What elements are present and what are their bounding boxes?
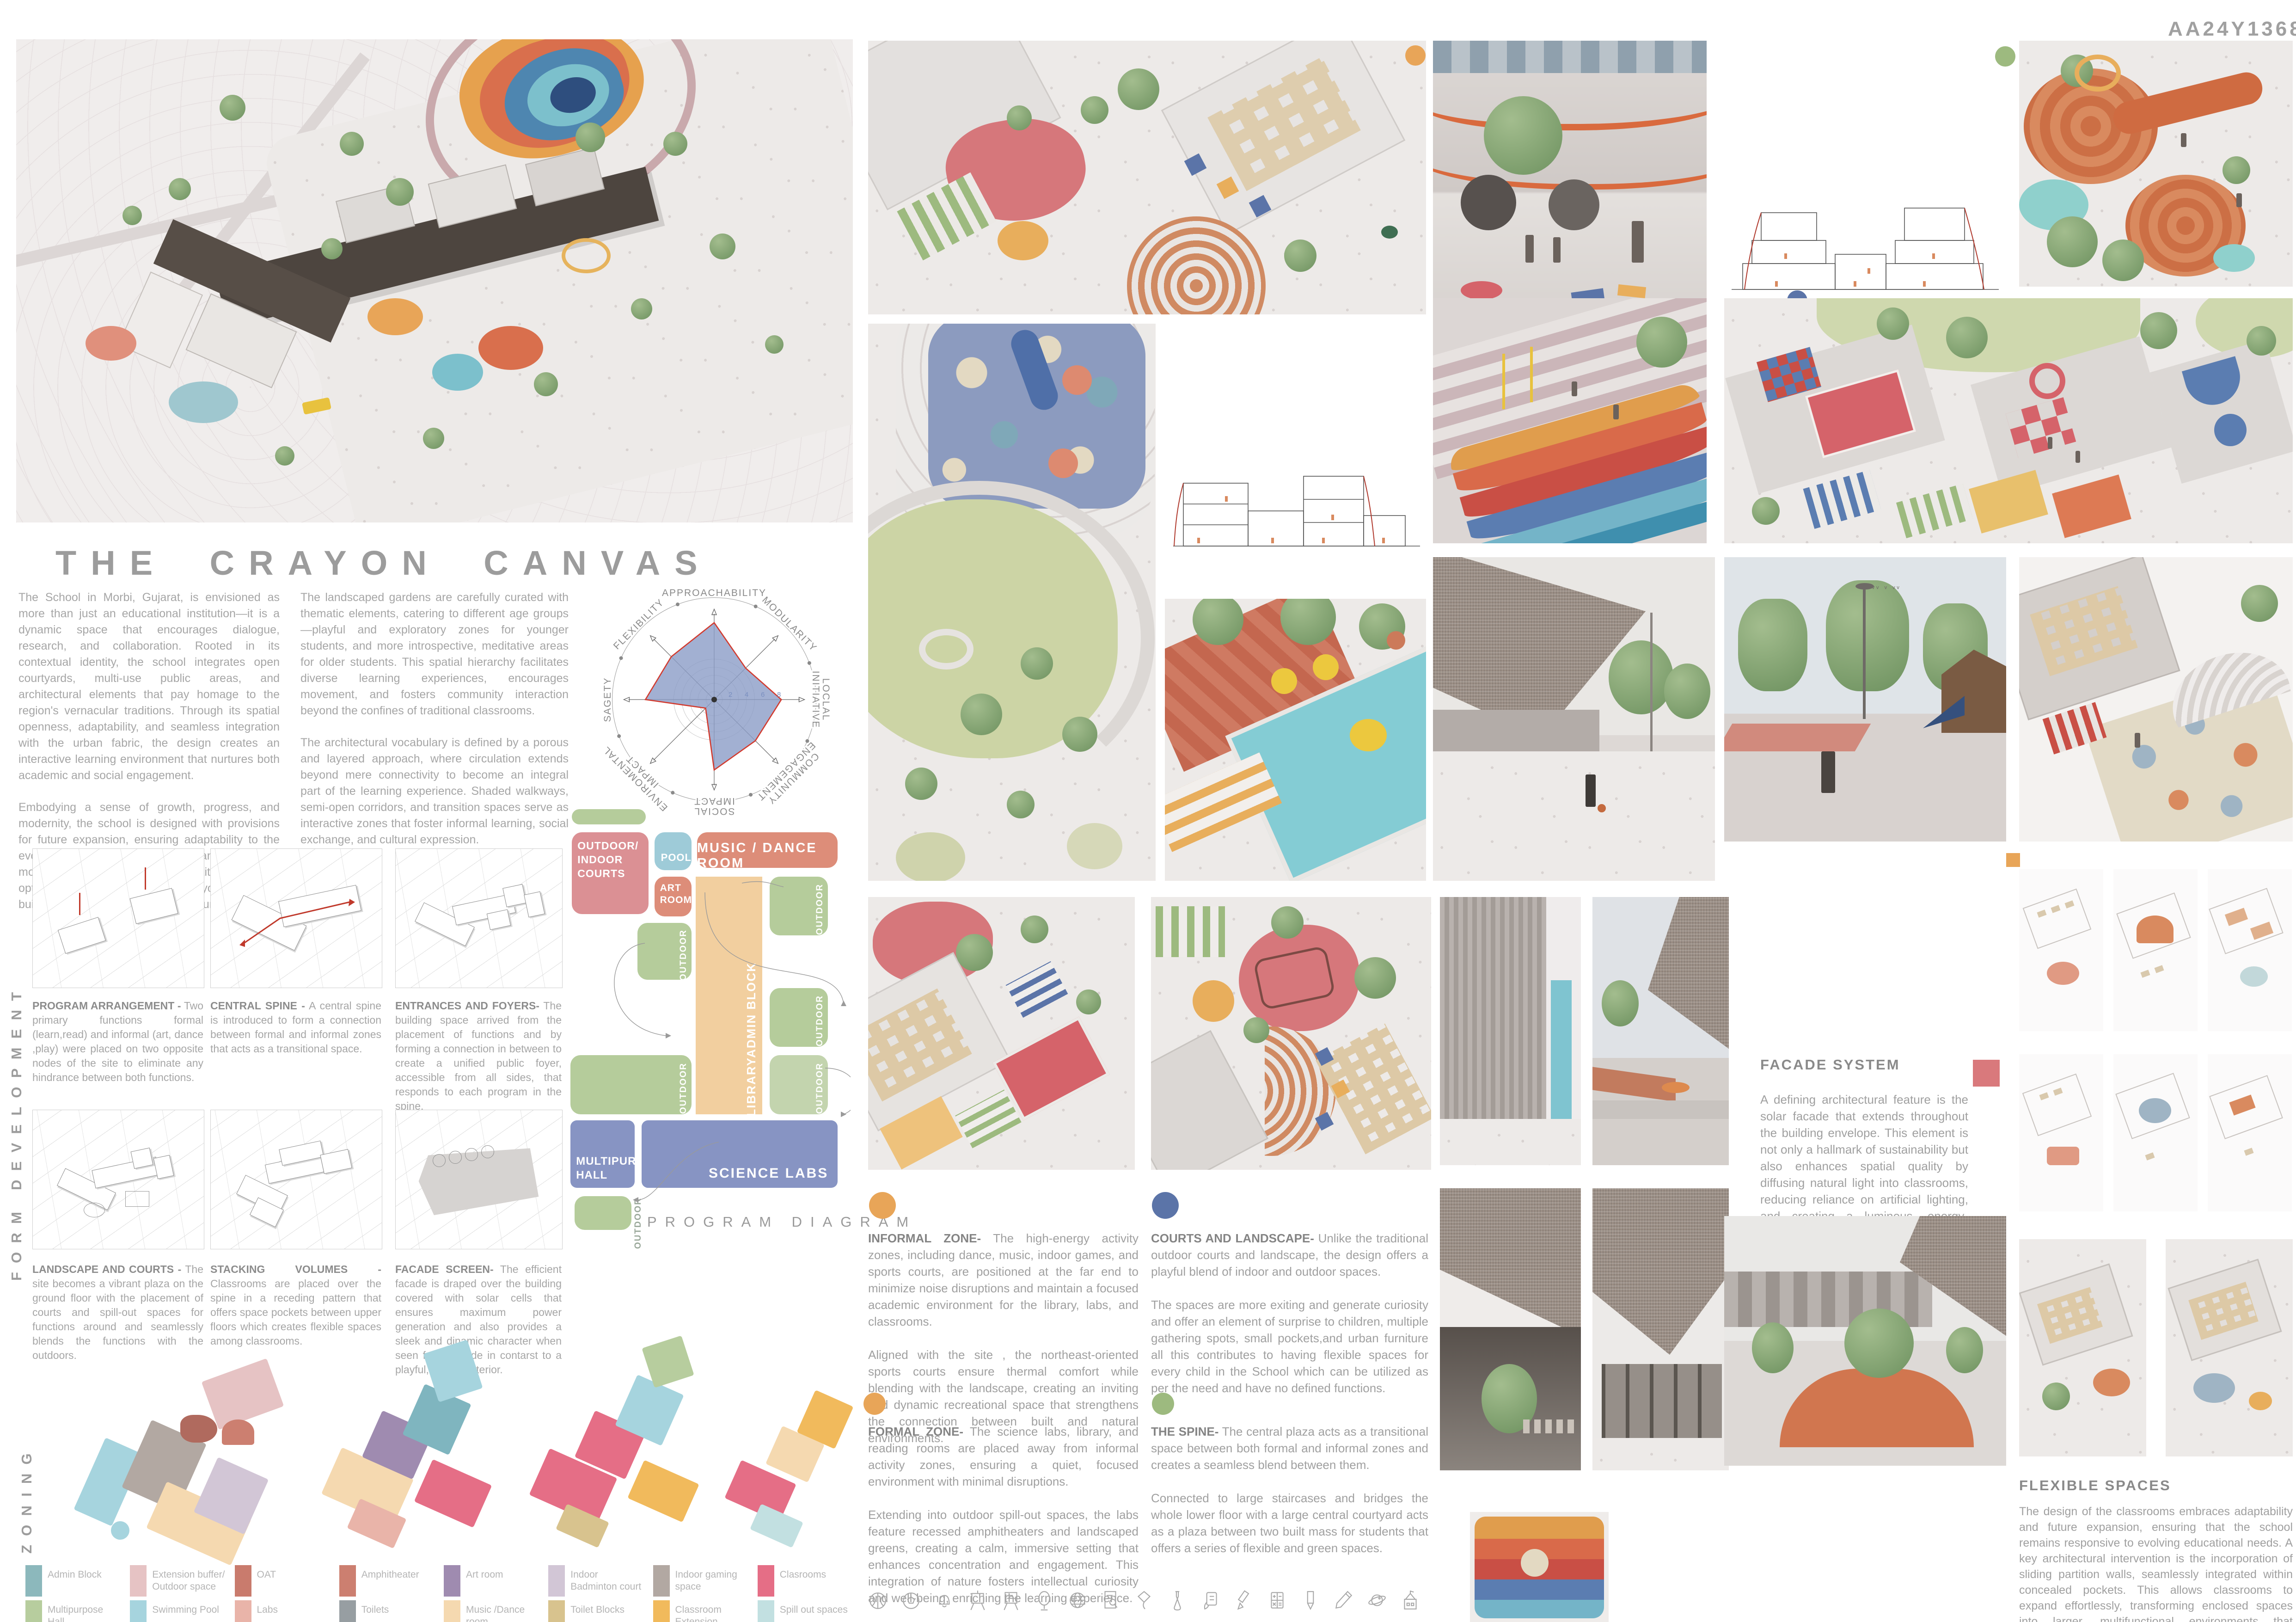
photo-brown-roof-building: [1433, 557, 1715, 881]
form-sketch-entrances-foyers: [395, 848, 563, 988]
court-rect-shape: [125, 1191, 149, 1207]
plaza-ground-shape: [1433, 751, 1715, 881]
person-figure: [2076, 451, 2080, 463]
tree-icon: [423, 428, 444, 449]
legend-swatch: [548, 1565, 565, 1597]
legend-item: Labs: [235, 1600, 335, 1622]
ring-mark-shape: [2029, 363, 2065, 399]
photo-playground-street: ᵛᵛ ᵛ ᵛᵛ: [1724, 557, 2006, 842]
solar-cell-shape: [481, 1145, 494, 1158]
tree-icon: [961, 694, 1002, 735]
play-spot-shape: [478, 326, 543, 370]
tree-icon: [1752, 497, 1780, 525]
competition-board: AA24Y1368: [0, 0, 2296, 1622]
legend-label: Extension buffer/ Outdoor space: [152, 1565, 226, 1593]
render-rainbow-flower-strip: [1470, 1512, 1609, 1622]
mass-box-shape: [58, 917, 106, 954]
zone-block-shape: [414, 1459, 492, 1528]
page-title: THE CRAYON CANVAS: [55, 543, 545, 583]
zone-text-spine: THE SPINE- The central plaza acts as a t…: [1151, 1423, 1428, 1573]
mass-box-shape: [153, 1155, 174, 1179]
legend-item: Toilets: [339, 1600, 439, 1622]
tree-icon: [2140, 312, 2177, 349]
floor-mark-shape: [1461, 281, 1502, 300]
tree-icon: [710, 233, 735, 259]
flow-arrows: [566, 809, 851, 1230]
zone-heading: FORMAL ZONE-: [868, 1425, 963, 1438]
person-figure: [2048, 437, 2052, 449]
flexible-spaces-paragraph: The design of the classrooms embraces ad…: [2019, 1504, 2293, 1622]
school-building-icon: [1401, 1590, 1420, 1611]
play-spot-shape: [367, 298, 423, 335]
desk-shape: [2145, 1152, 2155, 1160]
svg-text:APPROACHABILITY: APPROACHABILITY: [662, 588, 766, 598]
court-ellipse-shape: [84, 1203, 105, 1217]
tree-icon: [576, 123, 605, 152]
legend-item: Indoor Badminton court: [548, 1565, 648, 1597]
form-caption-title: PROGRAM ARRANGEMENT -: [32, 1000, 181, 1012]
intro-column-2: The landscaped gardens are carefully cur…: [300, 590, 569, 864]
form-sketch-central-spine: [210, 848, 382, 988]
tree-icon: [1738, 599, 1807, 691]
form-caption-text: The building space arrived from the plac…: [395, 1000, 562, 1112]
svg-text:LOCLALINITIATIVE: LOCLALINITIATIVE: [810, 671, 831, 729]
render-courtyard-ribbons: [1433, 41, 1707, 314]
blue-dot-mark-shape: [2214, 414, 2247, 446]
tree-icon: [220, 95, 245, 121]
salmon-circle-shape: [1062, 365, 1092, 395]
legend-label: Music /Dance room: [466, 1600, 540, 1622]
mass-box-shape: [130, 888, 178, 924]
legend-item: Extension buffer/ Outdoor space: [130, 1565, 230, 1597]
diagram-classroom-layout-5: [2113, 1054, 2198, 1211]
tree-icon: [1081, 96, 1108, 124]
orange-marker-square: [2006, 853, 2020, 867]
render-sports-courts-aerial: [1724, 298, 2293, 543]
legend-item: Music /Dance room: [444, 1600, 544, 1622]
tree-icon: [1484, 96, 1562, 175]
orange-ring-shape: [2075, 55, 2121, 92]
noticeboard-icon: [1001, 1590, 1021, 1611]
zone-dot-informal: [869, 1192, 896, 1219]
building-band-shape: [1433, 710, 1599, 751]
calculator-icon: [1267, 1590, 1287, 1611]
diagram-classroom-layout-6: [2208, 1054, 2292, 1211]
tree-icon: [534, 372, 558, 396]
tree-icon: [2223, 156, 2250, 184]
green-stripe-steps-shape: [1156, 906, 1225, 957]
legend-item: OAT: [235, 1565, 335, 1597]
tree-icon: [956, 934, 993, 971]
rubber-duck-shape: [1350, 719, 1387, 751]
diagram-classroom-layout-2: [2113, 869, 2198, 1031]
tree-icon: [765, 335, 784, 354]
orange-marker-dot: [1405, 45, 1426, 66]
svg-text:2: 2: [729, 691, 732, 699]
zoning-plan-2: [314, 1341, 513, 1554]
render-rainbow-court: [1433, 298, 1707, 543]
zone-dot-formal: [863, 1393, 886, 1415]
form-caption-title: LANDSCAPE AND COURTS -: [32, 1263, 181, 1275]
glazing-band-shape: [1433, 41, 1707, 73]
desk-shape: [2244, 1148, 2253, 1155]
photo-street-canopy: [1592, 897, 1729, 1165]
legend-label: Toilet Blocks: [570, 1600, 625, 1616]
tree-icon: [1946, 1327, 1983, 1373]
tree-icon: [1609, 640, 1673, 714]
tree-icon: [1007, 105, 1032, 130]
mass-box-shape: [502, 884, 527, 907]
svg-text:6: 6: [761, 691, 765, 699]
zoning-plan-1: [69, 1359, 300, 1554]
lamp-post-shape: [1650, 613, 1653, 751]
tree-icon: [169, 178, 191, 200]
flexible-spaces-text: The design of the classrooms embraces ad…: [2019, 1504, 2293, 1622]
facade-system-heading: FACADE SYSTEM: [1760, 1057, 1900, 1073]
tree-icon: [340, 132, 364, 156]
legend-swatch: [339, 1565, 356, 1597]
red-marker-square: [1973, 1060, 2000, 1087]
canopy-roof-shape: [1648, 897, 1729, 1077]
intro-paragraph: The landscaped gardens are carefully cur…: [300, 590, 569, 719]
subject-icon-row: [868, 1590, 1432, 1611]
form-caption: ENTRANCES AND FOYERS- The building space…: [395, 999, 562, 1113]
diagram-classroom-layout-1: [2019, 869, 2103, 1031]
legend-swatch: [653, 1600, 670, 1622]
tree-icon: [2042, 1382, 2070, 1410]
legend-swatch: [444, 1565, 460, 1597]
program-diagram: OUTDOOR/ INDOOR COURTS POOL MUSIC / DANC…: [566, 809, 851, 1230]
red-arrow-shape: [211, 849, 382, 988]
play-spot-shape: [432, 354, 483, 391]
render-playground-court-2: [1151, 897, 1431, 1170]
legend-swatch: [758, 1600, 774, 1622]
rug-shape: [2139, 1098, 2171, 1123]
stripe-mat-shape: [1006, 961, 1068, 1018]
mass-box-shape: [524, 891, 545, 917]
mass-box-shape: [487, 909, 511, 930]
tree-icon: [1877, 307, 1909, 340]
zone-block-shape: [202, 1358, 284, 1430]
legend-label: Spill out spaces: [780, 1600, 848, 1616]
tree-icon: [1021, 915, 1048, 943]
form-caption-text: The site becomes a vibrant plaza on the …: [32, 1263, 203, 1361]
solar-cell-shape: [465, 1148, 478, 1161]
mirror-icon: [1035, 1590, 1054, 1611]
flask-icon: [1168, 1590, 1187, 1611]
pool-strip-shape: [1551, 980, 1572, 1137]
red-ground-patch-shape: [1724, 724, 1871, 751]
tree-icon: [631, 298, 652, 319]
pencil-tilt-icon: [1334, 1590, 1353, 1611]
criteria-radar-chart: 2468APPROACHABILITYMODULARITYLOCLALINITI…: [585, 566, 844, 830]
report-search-icon: [1101, 1590, 1120, 1611]
tree-icon: [2047, 216, 2098, 267]
lawn-circle-shape: [1067, 823, 1122, 869]
legend-swatch: [653, 1565, 670, 1597]
legend-label: Indoor gaming space: [675, 1565, 749, 1593]
tree-icon: [1021, 647, 1053, 680]
tree-icon: [2102, 240, 2144, 281]
yellow-court-shape: [1969, 470, 2048, 533]
legend-item: Admin Block: [25, 1565, 125, 1597]
roof-corner-shape: [1592, 1188, 1729, 1355]
glazing-band-shape: [1602, 1364, 1722, 1438]
legend-label: Admin Block: [48, 1565, 102, 1581]
play-spot-shape: [86, 326, 136, 361]
diagram-classroom-iso-2: [2166, 1239, 2293, 1456]
legend-label: Toilets: [361, 1600, 389, 1616]
form-caption-title: CENTRAL SPINE -: [210, 1000, 305, 1012]
rug-shape: [2240, 966, 2268, 987]
legend-label: OAT: [257, 1565, 276, 1581]
render-courtyards-aerial: [868, 41, 1426, 314]
legend-label: Indoor Badminton court: [570, 1565, 644, 1593]
form-sketch-stacking-volumes: [210, 1110, 382, 1249]
tree-icon: [1243, 1017, 1269, 1043]
room-outline-shape: [2023, 889, 2092, 949]
deck-shape: [1440, 1119, 1581, 1165]
orange-court-shape: [2052, 474, 2131, 538]
render-swimming-pool: [1165, 599, 1426, 881]
zone-paragraph: Connected to large staircases and bridge…: [1151, 1491, 1428, 1555]
person-figure: [1613, 405, 1619, 419]
tree-icon: [1844, 1309, 1914, 1378]
legend-swatch: [444, 1600, 460, 1622]
round-opening-shape: [1549, 179, 1599, 230]
render-playground-court-1: [868, 897, 1135, 1170]
tree-icon: [1602, 980, 1639, 1026]
person-figure: [2135, 733, 2140, 748]
easel-icon: [968, 1590, 987, 1611]
legend-label: Amphitheater: [361, 1565, 419, 1581]
form-caption-title: STACKING VOLUMES -: [210, 1263, 381, 1275]
form-development-label: FORM DEVELOPMENT: [8, 837, 25, 1281]
tree-icon: [1076, 989, 1101, 1014]
zone-paragraph: The high-energy activity zones, includin…: [868, 1231, 1139, 1328]
plaza-ground-shape: [1592, 1438, 1729, 1470]
zone-dot-spine: [1152, 1393, 1174, 1415]
slat-facade-shape: [1440, 897, 1546, 1119]
intro-paragraph: The School in Morbi, Gujarat, is envisio…: [18, 590, 280, 784]
spill-out-shape: [2249, 1392, 2272, 1410]
road-shape: [1592, 1100, 1729, 1119]
building-shape: [1151, 1030, 1268, 1170]
svg-text:SAGETY: SAGETY: [602, 677, 613, 722]
zone-block-shape: [627, 1460, 699, 1522]
football-icon: [901, 1590, 921, 1611]
salmon-circle-shape: [1048, 449, 1078, 478]
zone-heading: INFORMAL ZONE-: [868, 1231, 981, 1245]
pond-shape: [2213, 244, 2255, 272]
room-outline-shape: [2209, 888, 2283, 954]
legend-swatch: [235, 1600, 251, 1622]
zone-text-courts-landscape: COURTS AND LANDSCAPE- Unlike the traditi…: [1151, 1230, 1428, 1413]
legend-label: Art room: [466, 1565, 503, 1581]
red-arrow-shape: [79, 893, 80, 915]
photo-courtyard-planter: [1724, 1216, 2006, 1466]
pencil-icon: [1301, 1590, 1320, 1611]
red-arrow-shape: [145, 867, 146, 890]
mass-box-shape: [320, 1149, 352, 1174]
tree-icon: [1062, 717, 1097, 752]
render-amphitheatre-aerial: [2019, 41, 2293, 287]
birds-shape: ᵛᵛ ᵛ ᵛᵛ: [1872, 585, 1928, 603]
zone-block-shape: [222, 1419, 254, 1445]
bench-row-shape: [1523, 1419, 1574, 1433]
lamp-post-shape: [1863, 590, 1866, 719]
track-strip-shape: [1592, 1067, 1676, 1101]
legend-item: Clasrooms: [758, 1565, 857, 1597]
solar-cell-shape: [433, 1154, 446, 1167]
person-figure: [1586, 774, 1596, 807]
tree-icon: [663, 132, 687, 156]
zone-dot-shape: [111, 1521, 129, 1540]
legend-label: Labs: [257, 1600, 278, 1616]
legend-item: Swimming Pool: [130, 1600, 230, 1622]
building-section-drawing-1: [1169, 455, 1424, 553]
goal-post-shape: [1502, 354, 1505, 409]
floor-mark-shape: [1617, 284, 1646, 298]
lawn-circle-shape: [896, 832, 965, 881]
form-caption-text: Two primary functions formal (learn,read…: [32, 1000, 203, 1083]
intro-paragraph: The architectural vocabulary is defined …: [300, 735, 569, 848]
form-caption: LANDSCAPE AND COURTS - The site becomes …: [32, 1262, 203, 1363]
ball-shape: [1598, 804, 1606, 812]
building-section-drawing-2: [1729, 199, 2002, 296]
desk-shape: [2140, 970, 2150, 977]
planet-icon: [1367, 1590, 1387, 1611]
tree-icon: [275, 446, 294, 466]
bus-shape: [302, 397, 331, 415]
legend-swatch: [548, 1600, 565, 1622]
round-opening-shape: [1461, 175, 1516, 230]
solar-cell-shape: [449, 1151, 462, 1164]
legend-item: Multipurpose Hall: [25, 1600, 125, 1622]
zone-paragraph: The spaces are more exiting and generate…: [1151, 1298, 1428, 1395]
form-caption: CENTRAL SPINE - A central spine is intro…: [210, 999, 381, 1056]
flexible-spaces-heading: FLEXIBLE SPACES: [2019, 1477, 2171, 1494]
tree-icon: [1752, 1322, 1794, 1373]
umbrella-shape: [1313, 654, 1339, 680]
tree-icon: [2247, 326, 2276, 356]
globe-icon: [1068, 1590, 1087, 1611]
form-sketch-program-arrangement: [32, 848, 204, 988]
basketball-icon: [868, 1590, 888, 1611]
amphi-shape: [2137, 915, 2174, 943]
marker-icon: [1234, 1590, 1254, 1611]
zone-dot-courts: [1152, 1192, 1179, 1219]
legend-swatch: [25, 1600, 42, 1622]
tree-icon: [1284, 240, 1316, 272]
legend-swatch: [130, 1565, 147, 1597]
tree-icon: [1271, 906, 1304, 939]
tree-icon: [1664, 664, 1710, 719]
legend-item: Classroom Extension: [653, 1600, 753, 1622]
flower-dot-shape: [1521, 1549, 1549, 1577]
legend-item: Indoor gaming space: [653, 1565, 753, 1597]
legend-swatch: [235, 1565, 251, 1597]
board-code: AA24Y1368: [2168, 18, 2284, 41]
umbrella-shape: [1271, 668, 1297, 694]
tree-icon: [321, 238, 343, 259]
tree-icon: [1946, 317, 1988, 358]
room-outline-shape: [2022, 1074, 2092, 1136]
diagram-classroom-layout-4: [2019, 1054, 2103, 1211]
play-spot-shape: [562, 238, 611, 273]
photo-roof-corner-glazing: [1592, 1188, 1729, 1470]
amphitheatre-steps-shape: [1127, 216, 1266, 314]
legend-swatch: [25, 1565, 42, 1597]
form-sketch-facade-screen: [395, 1110, 563, 1249]
tree-icon: [122, 206, 142, 225]
person-figure: [1821, 751, 1835, 793]
person-figure: [1632, 221, 1644, 263]
goal-post-shape: [1530, 347, 1533, 402]
orange-circle-shape: [998, 221, 1048, 260]
rug-shape: [2047, 962, 2079, 985]
legend-swatch: [758, 1565, 774, 1597]
tree-icon: [1007, 791, 1035, 818]
ramp-bridge-shape: [2110, 69, 2265, 137]
green-marker-dot: [1995, 46, 2015, 67]
zone-block-shape: [180, 1415, 217, 1443]
facade-drape-shape: [415, 1137, 539, 1216]
form-caption-title: ENTRANCES AND FOYERS-: [395, 1000, 539, 1012]
zoning-legend: Admin Block Extension buffer/ Outdoor sp…: [25, 1565, 857, 1622]
orange-canopy-shape: [1662, 1082, 1690, 1093]
kite-icon: [1134, 1590, 1154, 1611]
form-caption: PROGRAM ARRANGEMENT - Two primary functi…: [32, 999, 203, 1085]
bell-icon: [935, 1590, 954, 1611]
zoning-label: ZONING: [18, 1359, 35, 1554]
spill-out-shape: [2093, 1369, 2130, 1396]
diagram-classroom-iso-1: [2019, 1239, 2146, 1456]
render-floral-pool-park: [868, 324, 1156, 881]
zoning-plan-4: [721, 1369, 864, 1554]
zone-heading: COURTS AND LANDSCAPE-: [1151, 1231, 1314, 1245]
person-figure: [2236, 193, 2242, 207]
pond-shape: [169, 381, 238, 423]
photo-under-roof-court: [1440, 1188, 1581, 1470]
green-dot-shape: [1381, 226, 1398, 239]
legend-item: Spill out spaces: [758, 1600, 857, 1622]
tree-icon: [905, 768, 937, 800]
person-figure: [1572, 381, 1577, 396]
rug-shape: [2047, 1147, 2079, 1165]
legend-label: Classroom Extension: [675, 1600, 749, 1622]
roof-soffit-shape: [1440, 1188, 1581, 1336]
legend-label: Multipurpose Hall: [48, 1600, 122, 1622]
legend-label: Swimming Pool: [152, 1600, 219, 1616]
legend-item: Art room: [444, 1565, 544, 1597]
ribbon-balcony-shape: [1433, 110, 1707, 190]
form-caption: STACKING VOLUMES - Classrooms are placed…: [210, 1262, 381, 1348]
tree-icon: [2241, 585, 2278, 622]
form-caption-text: Classrooms are placed over the spine in …: [210, 1278, 381, 1347]
legend-swatch: [339, 1600, 356, 1622]
tree-icon: [1636, 317, 1687, 368]
zone-heading: THE SPINE-: [1151, 1425, 1218, 1438]
svg-text:4: 4: [745, 691, 748, 699]
desk-shape: [2154, 965, 2164, 973]
ring-bench-shape: [919, 629, 974, 670]
svg-text:8: 8: [777, 691, 781, 699]
render-floral-steps-iso: [2019, 557, 2293, 842]
lamp-head-shape: [1855, 583, 1874, 590]
form-caption-title: FACADE SCREEN-: [395, 1263, 494, 1275]
main-site-render: [16, 39, 853, 522]
